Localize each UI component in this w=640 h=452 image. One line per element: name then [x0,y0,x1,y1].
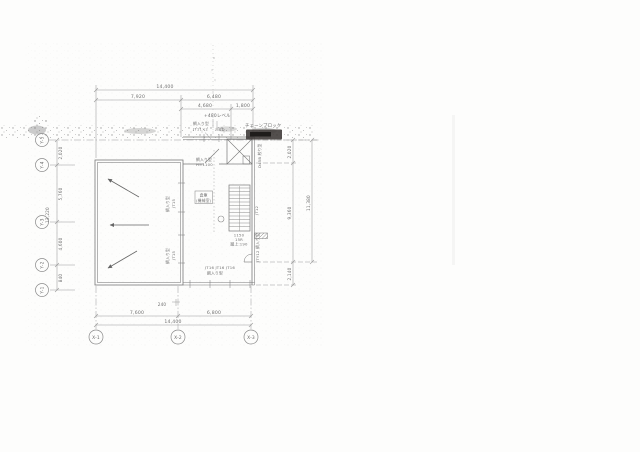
dim-left-seg4: 840 [58,274,63,283]
sash-top-type: 網入り型 [193,121,209,126]
dim-left-overall: 13,220 [45,207,50,223]
grid-label-y4: Y-4 [40,161,46,169]
grid-label-y5: Y-5 [40,136,46,144]
sash-right-d45b: D45B 絞り型 [257,143,262,168]
grid-label-x3: X-3 [247,335,255,341]
dim-top-sub-left: 4,680 [198,103,212,109]
dim-left-seg1: 2,020 [58,146,63,159]
dim-left-seg2: 5,760 [58,187,63,200]
grid-label-y2: Y-2 [40,261,46,269]
dim-top-overall: 14,400 [156,84,173,90]
scanned-floorplan-page: 14,400 7,920 6,480 4,680 1,800 2,020 5,7… [0,0,640,452]
dim-top-seg-left: 7,920 [131,94,145,100]
ink-stamp-blob-dark [250,132,271,137]
sash-right-jt12: JT12 [254,206,259,216]
sash-bottom-codes: JT16 JT16 JT16 [204,265,235,270]
paper-noise [25,42,325,347]
grid-label-x1: X-1 [92,335,100,341]
stair-riser-height-label: 蹴上:190 [230,242,248,247]
grid-label-x2: X-2 [174,335,182,341]
dim-top-sub-right: 1,800 [236,103,250,109]
storage-room-sublabel: (機械室) [196,198,212,203]
sash-left-lower-code: JT15 [171,251,176,261]
dim-right-overall: 11,380 [306,195,311,211]
sash-right-jty12: JTY12 網入り型 [255,233,260,263]
dim-right-seg3: 2,140 [287,267,292,280]
speckle-cluster [124,128,156,134]
dim-bottom-seg-left: 7,600 [130,310,144,316]
grid-label-y3: Y-3 [40,218,46,226]
faint-streak [452,115,455,265]
sash-left-upper-code: JT15 [171,199,176,209]
sash-bottom-type: 網入り型 [207,271,223,276]
sash-left-upper-type: 網入り型 [165,196,170,212]
dim-left-seg3: 4,600 [58,237,63,250]
dim-right-seg1: 2,020 [287,145,292,158]
dim-right-seg2: 9,360 [287,206,292,219]
speckle-cluster [34,116,48,128]
dim-top-seg-right: 6,480 [207,94,221,100]
grid-label-y1: Y-1 [40,286,46,294]
level-note: +480レベル [204,113,231,119]
sash-top-code: JT11×2 [192,127,208,132]
dim-bottom-offset: 240 [158,302,167,307]
dim-bottom-overall: 14,400 [164,319,181,325]
scan-artifacts [0,42,455,347]
floorplan-canvas: 14,400 7,920 6,480 4,680 1,800 2,020 5,7… [0,0,640,452]
rail-note-height: H=1100 [196,162,213,167]
sash-left-lower-type: 網入り型 [165,248,170,264]
chain-block-label: チェーンブロック [245,122,281,129]
door-code-sd: SD [219,127,225,132]
dim-bottom-seg-right: 6,800 [207,310,221,316]
storage-room-label: 倉庫 [200,193,208,198]
